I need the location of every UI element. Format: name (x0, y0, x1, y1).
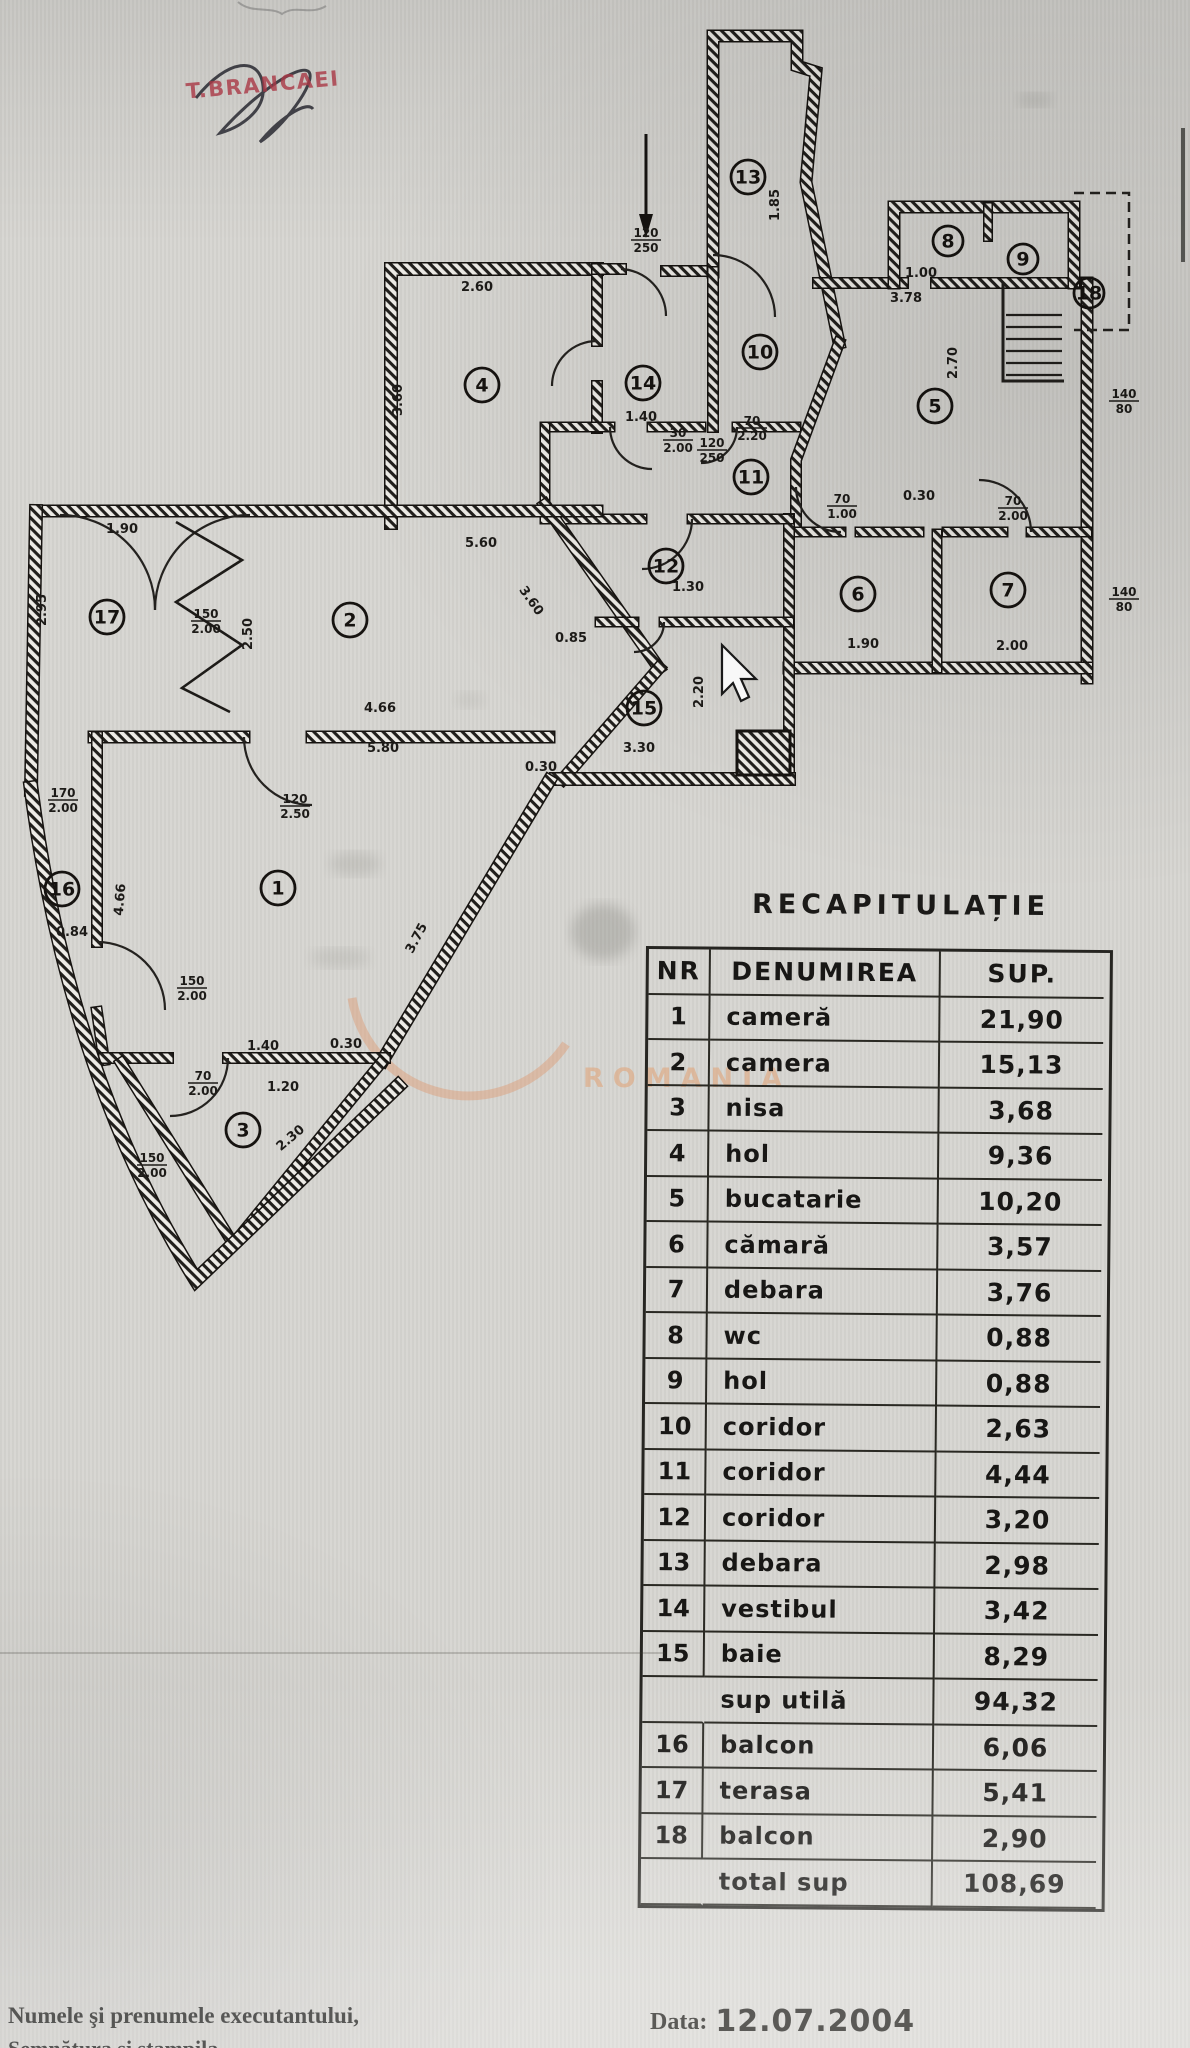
row-11-name: coridor (706, 1450, 936, 1498)
scanned-floor-plan-page: ROMANIA2.603.601202501.40302.00120250702… (0, 0, 1190, 2048)
svg-text:2.00: 2.00 (996, 639, 1028, 654)
row-2-sup: 15,13 (940, 1043, 1103, 1090)
row-1-name: cameră (710, 995, 940, 1043)
svg-text:2.60: 2.60 (461, 280, 493, 295)
row-18-nr: 17 (641, 1768, 703, 1814)
dimension-label: 1.00 (905, 266, 937, 281)
dimension-label: 2.50 (241, 618, 256, 650)
svg-text:1.90: 1.90 (847, 637, 879, 652)
room-number-6: 6 (851, 584, 864, 606)
row-5-sup: 10,20 (939, 1179, 1102, 1226)
dimension-label: 4.66 (364, 701, 396, 716)
row-7-sup: 3,76 (938, 1270, 1101, 1317)
room-number-3: 3 (236, 1120, 249, 1142)
room-number-1: 1 (271, 878, 284, 900)
dimension-label: 2.95 (35, 594, 50, 626)
scan-edge-artifact (1181, 128, 1185, 262)
scan-smudge (1017, 93, 1053, 107)
dimension-label: 1.20 (267, 1080, 299, 1095)
row-16-name: sup utilă (704, 1678, 934, 1726)
svg-text:2.00: 2.00 (188, 1084, 218, 1098)
row-14-sup: 3,42 (935, 1589, 1098, 1636)
svg-text:0.30: 0.30 (330, 1037, 362, 1052)
dimension-label: 1.40 (247, 1039, 279, 1054)
svg-text:1.90: 1.90 (106, 522, 138, 537)
svg-text:1.85: 1.85 (768, 189, 783, 221)
row-8-sup: 0,88 (937, 1316, 1100, 1363)
svg-text:140: 140 (1111, 585, 1136, 599)
row-8-name: wc (707, 1314, 937, 1362)
row-11-sup: 4,44 (936, 1452, 1099, 1499)
row-18-name: terasa (703, 1769, 933, 1817)
svg-text:120: 120 (699, 436, 724, 450)
svg-text:2.95: 2.95 (35, 594, 50, 626)
stairs-edge (1003, 283, 1064, 381)
svg-text:120: 120 (633, 226, 658, 240)
svg-text:2.20: 2.20 (692, 676, 707, 708)
dimension-label: 702.00 (998, 494, 1028, 523)
row-10-sup: 2,63 (937, 1407, 1100, 1454)
room-number-13: 13 (735, 167, 761, 189)
dimension-label: 5.60 (465, 536, 497, 551)
room-number-11: 11 (738, 467, 764, 489)
row-3-sup: 3,68 (939, 1088, 1102, 1135)
row-4-name: hol (709, 1132, 939, 1180)
svg-text:1.20: 1.20 (267, 1080, 299, 1095)
dimension-label: 1502.00 (191, 607, 221, 636)
svg-text:2.50: 2.50 (241, 618, 256, 650)
svg-text:1.40: 1.40 (247, 1039, 279, 1054)
row-12-nr: 12 (644, 1495, 706, 1541)
scan-smudge (454, 692, 486, 708)
door-arc (610, 427, 652, 469)
room-number-8: 8 (941, 231, 954, 253)
faint-handwriting (238, 2, 326, 14)
dimension-label: 1502.00 (137, 1151, 167, 1180)
dimension-label: 702.20 (737, 414, 767, 443)
dimension-label: 1502.00 (177, 974, 207, 1003)
dimension-label: 0.84 (56, 925, 88, 940)
door-arc (97, 942, 165, 1010)
dimension-label: 14080 (1109, 585, 1139, 614)
svg-text:70: 70 (1005, 494, 1022, 508)
room-number-16: 16 (49, 879, 75, 901)
row-20-sup: 108,69 (933, 1862, 1096, 1909)
scan-smudge (329, 852, 381, 876)
dimension-label: 1.40 (625, 410, 657, 425)
dimension-label: 1202.50 (280, 792, 310, 821)
svg-text:3.30: 3.30 (623, 741, 655, 756)
room-number-2: 2 (343, 610, 356, 632)
row-12-sup: 3,20 (936, 1498, 1099, 1545)
dimension-label: 701.00 (827, 492, 857, 521)
svg-text:1.30: 1.30 (672, 580, 704, 595)
row-6-nr: 6 (646, 1222, 708, 1268)
wall-hatch (796, 343, 839, 531)
dimension-label: 120250 (631, 226, 661, 255)
dimension-label: 702.00 (188, 1069, 218, 1098)
dimension-label: 0.85 (555, 631, 587, 646)
svg-text:250: 250 (699, 451, 724, 465)
dimension-label: 1.30 (672, 580, 704, 595)
svg-text:70: 70 (834, 492, 851, 506)
svg-text:80: 80 (1116, 600, 1133, 614)
room-number-4: 4 (475, 375, 488, 397)
svg-text:140: 140 (1111, 387, 1136, 401)
row-18-sup: 5,41 (933, 1771, 1096, 1818)
dimension-label: 0.30 (525, 760, 557, 775)
row-1-nr: 1 (648, 995, 710, 1041)
scan-smudge (571, 904, 635, 960)
row-13-nr: 13 (643, 1541, 705, 1587)
svg-text:2.00: 2.00 (998, 509, 1028, 523)
mouse-cursor-icon (722, 645, 756, 701)
svg-text:2.00: 2.00 (663, 441, 693, 455)
dimension-label: 3.60 (516, 584, 547, 619)
row-4-sup: 9,36 (939, 1134, 1102, 1181)
row-2-nr: 2 (648, 1040, 710, 1086)
row-5-nr: 5 (647, 1177, 709, 1223)
row-16-sup: 94,32 (934, 1680, 1097, 1727)
row-15-name: baie (705, 1632, 935, 1680)
row-10-nr: 10 (645, 1404, 707, 1450)
door-arc (552, 341, 597, 386)
svg-text:3.60: 3.60 (391, 384, 406, 416)
recap-table: NR DENUMIREA SUP. 1cameră21,902camera15,… (638, 946, 1113, 1912)
room-number-14: 14 (630, 373, 656, 395)
dimension-label: 1.90 (106, 522, 138, 537)
row-12-name: coridor (706, 1496, 936, 1544)
wall-hatch (563, 668, 659, 779)
svg-text:2.00: 2.00 (137, 1166, 167, 1180)
svg-text:4.66: 4.66 (364, 701, 396, 716)
footer-date: Data:12.07.2004 (650, 2004, 915, 2039)
svg-text:1.00: 1.00 (827, 507, 857, 521)
row-9-nr: 9 (645, 1359, 707, 1405)
svg-text:1.00: 1.00 (905, 266, 937, 281)
row-8-nr: 8 (645, 1313, 707, 1359)
row-9-sup: 0,88 (937, 1361, 1100, 1408)
row-15-nr: 15 (643, 1632, 705, 1678)
svg-text:2.20: 2.20 (737, 429, 767, 443)
svg-text:0.30: 0.30 (525, 760, 557, 775)
row-20-nr (641, 1859, 703, 1905)
row-11-nr: 11 (644, 1450, 706, 1496)
row-1-sup: 21,90 (940, 997, 1103, 1044)
recap-col-nr: NR (649, 949, 711, 995)
row-20-name: total sup (703, 1860, 933, 1908)
row-17-name: balcon (704, 1723, 934, 1771)
dimension-label: 3.75 (403, 921, 431, 956)
svg-text:2.70: 2.70 (946, 347, 961, 379)
dimension-label: 3.30 (623, 741, 655, 756)
door-arc (713, 255, 775, 317)
room-number-15: 15 (631, 698, 657, 720)
recap-title: RECAPITULAȚIE (752, 889, 1050, 922)
svg-text:2.00: 2.00 (177, 989, 207, 1003)
svg-text:150: 150 (139, 1151, 164, 1165)
row-19-sup: 2,90 (933, 1816, 1096, 1863)
dimension-label: 2.00 (996, 639, 1028, 654)
svg-text:4.66: 4.66 (112, 883, 130, 916)
svg-text:5.60: 5.60 (465, 536, 497, 551)
footer-signature-label: Semnătura şi ştampila (8, 2036, 218, 2048)
room-number-7: 7 (1001, 580, 1014, 602)
row-14-name: vestibul (705, 1587, 935, 1635)
dimension-label: 1702.00 (48, 786, 78, 815)
svg-text:250: 250 (633, 241, 658, 255)
svg-text:3.60: 3.60 (516, 584, 547, 619)
row-6-sup: 3,57 (938, 1225, 1101, 1272)
row-3-nr: 3 (647, 1086, 709, 1132)
svg-text:0.84: 0.84 (56, 925, 88, 940)
svg-text:30: 30 (670, 426, 687, 440)
row-19-nr: 18 (641, 1813, 703, 1859)
svg-text:3.78: 3.78 (890, 291, 922, 306)
dimension-label: 3.60 (391, 384, 406, 416)
svg-text:2.00: 2.00 (191, 622, 221, 636)
dimension-label: 2.60 (461, 280, 493, 295)
svg-text:80: 80 (1116, 402, 1133, 416)
row-14-nr: 14 (643, 1586, 705, 1632)
room-number-10: 10 (747, 342, 773, 364)
row-17-nr: 16 (642, 1722, 704, 1768)
svg-text:70: 70 (195, 1069, 212, 1083)
row-7-nr: 7 (646, 1268, 708, 1314)
dimension-label: 2.70 (946, 347, 961, 379)
row-4-nr: 4 (647, 1131, 709, 1177)
wall-hatch (383, 781, 549, 1060)
recap-col-sup: SUP. (941, 952, 1104, 999)
row-13-name: debara (705, 1541, 935, 1589)
dimension-label: 5.80 (367, 741, 399, 756)
flue-block (737, 731, 790, 775)
row-16-nr (642, 1677, 704, 1723)
date-label: Data: (650, 2009, 707, 2035)
room-number-9: 9 (1016, 249, 1029, 271)
svg-text:0.85: 0.85 (555, 631, 587, 646)
dimension-label: 2.20 (692, 676, 707, 708)
row-9-name: hol (707, 1359, 937, 1407)
dimension-label: 0.30 (330, 1037, 362, 1052)
svg-text:1.40: 1.40 (625, 410, 657, 425)
door-arc (621, 269, 666, 316)
scan-smudge (310, 948, 370, 968)
row-7-name: debara (708, 1268, 938, 1316)
svg-text:3.75: 3.75 (403, 921, 431, 956)
svg-text:150: 150 (193, 607, 218, 621)
dimension-label: 1.85 (768, 189, 783, 221)
dimension-label: 0.30 (903, 489, 935, 504)
dimension-label: 120250 (697, 436, 727, 465)
row-13-sup: 2,98 (935, 1543, 1098, 1590)
row-19-name: balcon (703, 1814, 933, 1862)
svg-text:0.30: 0.30 (903, 489, 935, 504)
svg-text:70: 70 (744, 414, 761, 428)
dimension-label: 14080 (1109, 387, 1139, 416)
row-15-sup: 8,29 (935, 1634, 1098, 1681)
room-number-18: 18 (1076, 283, 1102, 305)
row-17-sup: 6,06 (934, 1725, 1097, 1772)
svg-text:120: 120 (282, 792, 307, 806)
row-3-name: nisa (709, 1086, 939, 1134)
row-5-name: bucatarie (709, 1177, 939, 1225)
svg-text:170: 170 (50, 786, 75, 800)
svg-text:2.00: 2.00 (48, 801, 78, 815)
room-number-12: 12 (653, 556, 679, 578)
svg-text:2.50: 2.50 (280, 807, 310, 821)
dimension-label: 3.78 (890, 291, 922, 306)
row-6-name: cămară (708, 1223, 938, 1271)
room-number-17: 17 (94, 607, 120, 629)
svg-text:5.80: 5.80 (367, 741, 399, 756)
dimension-label: 4.66 (112, 883, 130, 916)
svg-text:150: 150 (179, 974, 204, 988)
recap-col-name: DENUMIREA (711, 950, 941, 998)
row-2-name: camera (710, 1041, 940, 1089)
room-number-5: 5 (928, 396, 941, 418)
date-value: 12.07.2004 (715, 2004, 915, 2039)
dimension-label: 1.90 (847, 637, 879, 652)
footer-executant-label: Numele şi prenumele executantului, (8, 2003, 359, 2029)
wall-hatch (31, 511, 36, 790)
row-10-name: coridor (707, 1405, 937, 1453)
